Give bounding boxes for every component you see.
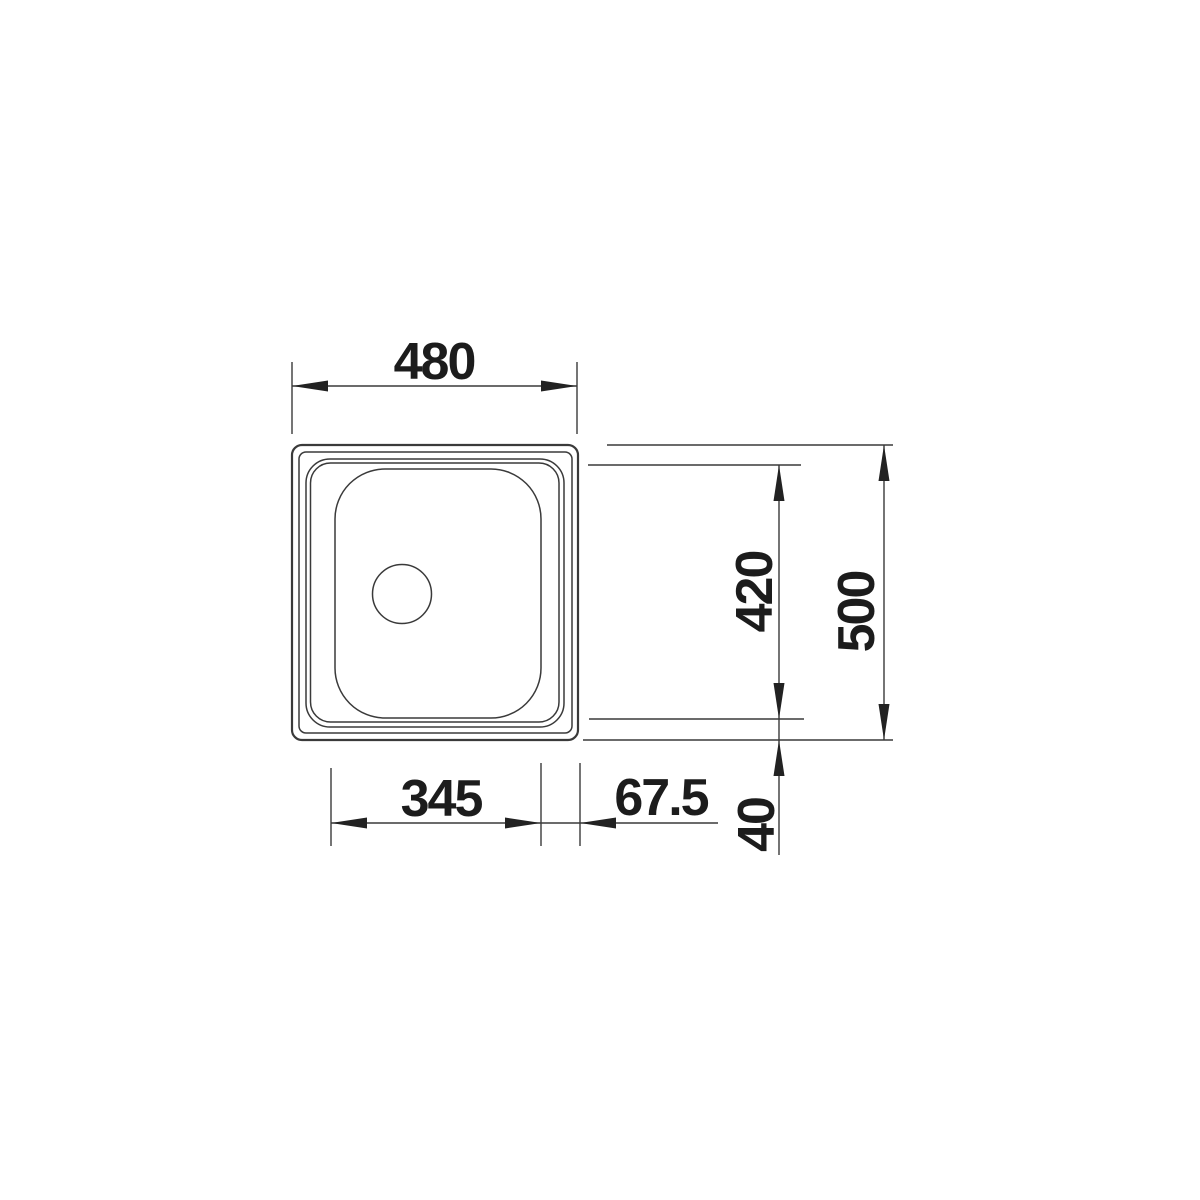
arrowhead-up	[774, 465, 785, 501]
dim-label-width: 480	[394, 333, 475, 391]
dim-label-rim-offset-right: 67.5	[614, 769, 708, 827]
arrowhead-right	[505, 818, 541, 829]
dimension-rim-offset-67-5: 67.5	[580, 763, 709, 846]
dim-label-bowl-depth: 420	[726, 552, 784, 633]
arrowhead-down	[774, 683, 785, 719]
rim-inner-line	[311, 463, 560, 722]
sink-outline-group	[292, 445, 578, 740]
bowl-outline	[335, 469, 541, 718]
drawing-page: 480 420 500 345	[0, 0, 1200, 1200]
arrowhead-left	[580, 818, 616, 829]
technical-drawing-canvas: 480 420 500 345	[0, 0, 1200, 1200]
arrowhead-left	[331, 818, 367, 829]
dimension-width-480: 480	[292, 333, 577, 434]
arrowhead-up	[879, 445, 890, 481]
dim-label-bowl-width: 345	[401, 770, 483, 828]
arrowhead-up	[774, 740, 785, 776]
drain-hole	[373, 565, 432, 624]
arrowhead-down	[879, 704, 890, 740]
dimension-rim-offset-40: 40	[728, 740, 786, 852]
arrowhead-right	[541, 381, 577, 392]
dim-label-overall-depth: 500	[828, 572, 886, 653]
rim-outer-line	[306, 459, 564, 727]
arrowhead-left	[292, 381, 328, 392]
dim-label-rim-offset-bottom: 40	[728, 798, 786, 852]
